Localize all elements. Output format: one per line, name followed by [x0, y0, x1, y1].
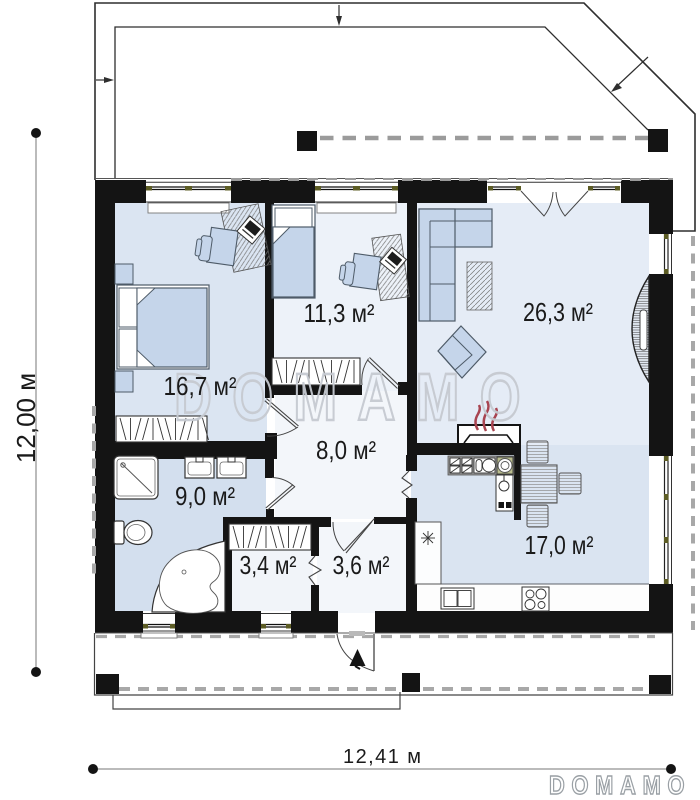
svg-text:16,7 м²: 16,7 м²: [164, 371, 237, 401]
svg-text:DOMAMO: DOMAMO: [549, 771, 691, 800]
svg-text:8,0 м²: 8,0 м²: [316, 435, 376, 465]
svg-text:3,4 м²: 3,4 м²: [240, 550, 297, 580]
svg-text:3,6 м²: 3,6 м²: [333, 550, 390, 580]
svg-text:12,41 м: 12,41 м: [343, 746, 421, 768]
svg-text:11,3 м²: 11,3 м²: [304, 298, 375, 328]
svg-text:26,3 м²: 26,3 м²: [523, 297, 593, 327]
svg-text:9,0 м²: 9,0 м²: [175, 481, 235, 511]
svg-text:12,00 м: 12,00 м: [11, 373, 41, 463]
svg-text:17,0 м²: 17,0 м²: [525, 530, 594, 560]
